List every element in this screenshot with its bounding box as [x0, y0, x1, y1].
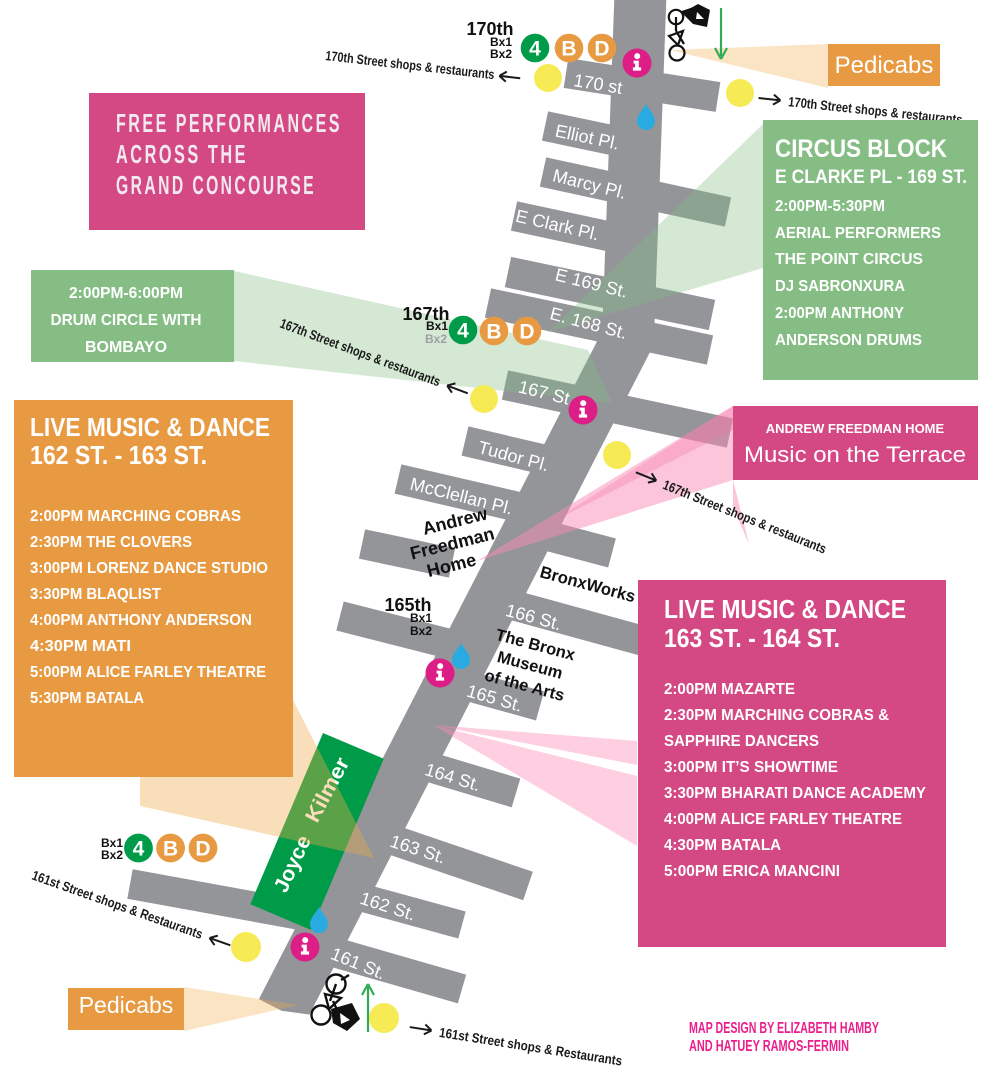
svg-text:MAP DESIGN BY ELIZABETH HAMBY: MAP DESIGN BY ELIZABETH HAMBY [689, 1020, 879, 1037]
svg-text:B: B [561, 38, 576, 61]
svg-text:CIRCUS BLOCK: CIRCUS BLOCK [775, 135, 947, 163]
svg-text:163 ST. - 164 ST.: 163 ST. - 164 ST. [664, 623, 840, 653]
svg-text:2:00PM MARCHING COBRAS: 2:00PM MARCHING COBRAS [30, 508, 241, 525]
svg-text:5:00PM ALICE FARLEY THEATRE: 5:00PM ALICE FARLEY THEATRE [30, 664, 266, 681]
svg-text:Pedicabs: Pedicabs [835, 52, 934, 79]
svg-text:170th Street shops & restauran: 170th Street shops & restaurants [325, 48, 496, 82]
svg-text:3:00PM LORENZ DANCE STUDIO: 3:00PM LORENZ DANCE STUDIO [30, 560, 268, 577]
svg-text:ANDERSON DRUMS: ANDERSON DRUMS [775, 332, 922, 349]
svg-text:AND HATUEY RAMOS-FERMIN: AND HATUEY RAMOS-FERMIN [689, 1038, 849, 1055]
svg-text:167th Street shops & restauran: 167th Street shops & restaurants [661, 477, 829, 556]
svg-text:2:00PM-5:30PM: 2:00PM-5:30PM [775, 198, 885, 215]
svg-text:BronxWorks: BronxWorks [538, 563, 638, 607]
svg-text:2:30PM THE CLOVERS: 2:30PM THE CLOVERS [30, 534, 192, 551]
svg-text:2:00PM MAZARTE: 2:00PM MAZARTE [664, 681, 795, 698]
svg-text:D: D [195, 838, 210, 861]
svg-text:Bx2: Bx2 [490, 47, 512, 61]
svg-text:ACROSS THE: ACROSS THE [116, 139, 248, 169]
svg-text:161st Street shops & Restauran: 161st Street shops & Restaurants [438, 1025, 623, 1069]
svg-text:Bx1: Bx1 [426, 319, 448, 333]
svg-text:2:00PM ANTHONY: 2:00PM ANTHONY [775, 305, 904, 322]
svg-text:162 ST. - 163 ST.: 162 ST. - 163 ST. [30, 440, 207, 470]
svg-text:LIVE MUSIC & DANCE: LIVE MUSIC & DANCE [664, 594, 906, 624]
svg-text:4:30PM MATI: 4:30PM MATI [30, 638, 131, 655]
svg-text:BOMBAYO: BOMBAYO [85, 339, 167, 356]
svg-text:D: D [594, 38, 609, 61]
svg-text:4:00PM ANTHONY ANDERSON: 4:00PM ANTHONY ANDERSON [30, 612, 252, 629]
svg-text:Bx2: Bx2 [425, 332, 447, 346]
svg-text:3:30PM BLAQLIST: 3:30PM BLAQLIST [30, 586, 162, 603]
svg-text:Bx1: Bx1 [410, 611, 432, 625]
svg-text:4:00PM ALICE FARLEY THEATRE: 4:00PM ALICE FARLEY THEATRE [664, 811, 902, 828]
svg-text:AERIAL PERFORMERS: AERIAL PERFORMERS [775, 225, 941, 242]
svg-text:3:00PM IT’S SHOWTIME: 3:00PM IT’S SHOWTIME [664, 759, 838, 776]
svg-text:E CLARKE PL - 169 ST.: E CLARKE PL - 169 ST. [775, 167, 967, 188]
svg-text:4: 4 [133, 838, 145, 861]
svg-text:Pedicabs: Pedicabs [79, 992, 174, 1018]
svg-text:4: 4 [529, 38, 541, 61]
svg-text:DRUM CIRCLE WITH: DRUM CIRCLE WITH [51, 312, 202, 329]
svg-text:SAPPHIRE DANCERS: SAPPHIRE DANCERS [664, 733, 819, 750]
svg-text:Bx2: Bx2 [101, 848, 123, 862]
svg-text:B: B [486, 321, 501, 344]
svg-text:DJ SABRONXURA: DJ SABRONXURA [775, 278, 905, 295]
svg-text:2:00PM-6:00PM: 2:00PM-6:00PM [69, 285, 183, 302]
svg-text:B: B [163, 838, 178, 861]
svg-text:FREE PERFORMANCES: FREE PERFORMANCES [116, 108, 342, 138]
svg-text:Bx2: Bx2 [410, 624, 432, 638]
svg-text:3:30PM BHARATI DANCE ACADEMY: 3:30PM BHARATI DANCE ACADEMY [664, 785, 927, 802]
svg-text:5:00PM ERICA MANCINI: 5:00PM ERICA MANCINI [664, 863, 840, 880]
svg-text:Music on the Terrace: Music on the Terrace [744, 442, 966, 467]
svg-text:LIVE MUSIC & DANCE: LIVE MUSIC & DANCE [30, 412, 270, 442]
svg-text:ANDREW FREEDMAN HOME: ANDREW FREEDMAN HOME [766, 421, 945, 436]
svg-text:4:30PM BATALA: 4:30PM BATALA [664, 837, 781, 854]
svg-text:D: D [519, 321, 534, 344]
svg-text:4: 4 [457, 320, 469, 343]
svg-text:GRAND CONCOURSE: GRAND CONCOURSE [116, 170, 316, 200]
svg-text:THE POINT CIRCUS: THE POINT CIRCUS [775, 251, 923, 268]
svg-text:2:30PM MARCHING COBRAS &: 2:30PM MARCHING COBRAS & [664, 707, 889, 724]
svg-text:5:30PM BATALA: 5:30PM BATALA [30, 690, 144, 707]
